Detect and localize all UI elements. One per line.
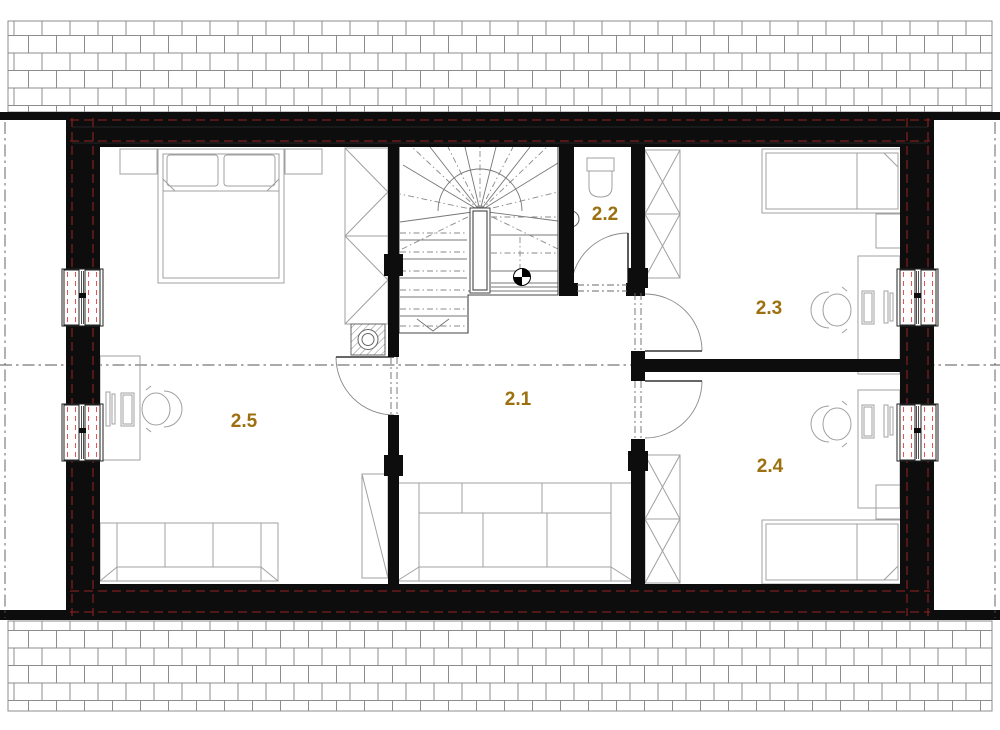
room-2-5-furniture bbox=[100, 148, 388, 581]
sofa bbox=[100, 523, 278, 581]
wall-post bbox=[628, 268, 648, 288]
door-room-2-4 bbox=[645, 381, 702, 438]
office-chair bbox=[811, 401, 851, 447]
office-chair bbox=[811, 287, 851, 333]
brick-band-top bbox=[8, 21, 992, 112]
desk bbox=[100, 356, 140, 460]
single-bed bbox=[762, 149, 902, 213]
monitor-icon bbox=[884, 405, 888, 437]
stair-level-marker bbox=[514, 269, 531, 286]
brick-band-bottom bbox=[8, 621, 992, 711]
monitor-icon bbox=[112, 394, 115, 424]
wall-post bbox=[384, 455, 403, 476]
attic-floor-plan: 2.1 2.2 2.3 2.4 2.5 bbox=[0, 0, 1000, 730]
keyboard-icon bbox=[864, 293, 872, 322]
wardrobe bbox=[645, 455, 680, 583]
chimney-flue bbox=[351, 324, 385, 355]
room-label-2-4: 2.4 bbox=[757, 456, 784, 477]
stair-left-flight bbox=[400, 233, 467, 331]
monitor-icon bbox=[890, 293, 893, 321]
staircase bbox=[399, 147, 558, 333]
desk bbox=[858, 390, 900, 508]
window-right-lower bbox=[897, 404, 938, 461]
window-left-lower bbox=[62, 404, 103, 461]
room-label-2-2: 2.2 bbox=[592, 204, 618, 225]
opening-markers bbox=[391, 285, 641, 439]
single-bed bbox=[762, 520, 902, 584]
nightstand bbox=[876, 485, 902, 519]
hallway-furniture bbox=[397, 483, 633, 581]
nightstand bbox=[876, 214, 902, 248]
window-right-upper bbox=[897, 269, 938, 326]
wall-post bbox=[384, 254, 403, 276]
wardrobe bbox=[345, 148, 388, 324]
room-2-3-furniture bbox=[645, 149, 902, 374]
monitor-icon bbox=[884, 291, 888, 323]
nightstand bbox=[120, 149, 157, 174]
stair-direction-arrow bbox=[417, 319, 449, 331]
wardrobe bbox=[645, 150, 680, 278]
room-label-2-5: 2.5 bbox=[231, 411, 258, 432]
office-chair bbox=[142, 386, 182, 432]
desk bbox=[858, 256, 900, 374]
monitor-icon bbox=[106, 392, 110, 426]
keyboard-icon bbox=[864, 407, 872, 436]
door-room-2-3 bbox=[645, 294, 702, 351]
toilet bbox=[587, 158, 614, 197]
door-bathroom-2-2 bbox=[571, 233, 628, 290]
keyboard-icon bbox=[123, 395, 132, 424]
monitor-icon bbox=[890, 407, 893, 435]
room-2-4-furniture bbox=[645, 390, 902, 584]
room-label-2-1: 2.1 bbox=[505, 389, 532, 410]
wall-post bbox=[628, 451, 648, 471]
floor-plan-page: 2.1 2.2 2.3 2.4 2.5 bbox=[0, 0, 1000, 730]
sofa-back-cushion bbox=[462, 483, 542, 513]
room-label-2-3: 2.3 bbox=[756, 298, 782, 319]
door-room-2-5 bbox=[336, 357, 394, 415]
sloped-cabinet bbox=[362, 474, 388, 578]
nightstand bbox=[285, 149, 322, 174]
double-bed bbox=[158, 149, 284, 283]
sofa bbox=[397, 483, 633, 581]
window-left-upper bbox=[62, 269, 103, 326]
